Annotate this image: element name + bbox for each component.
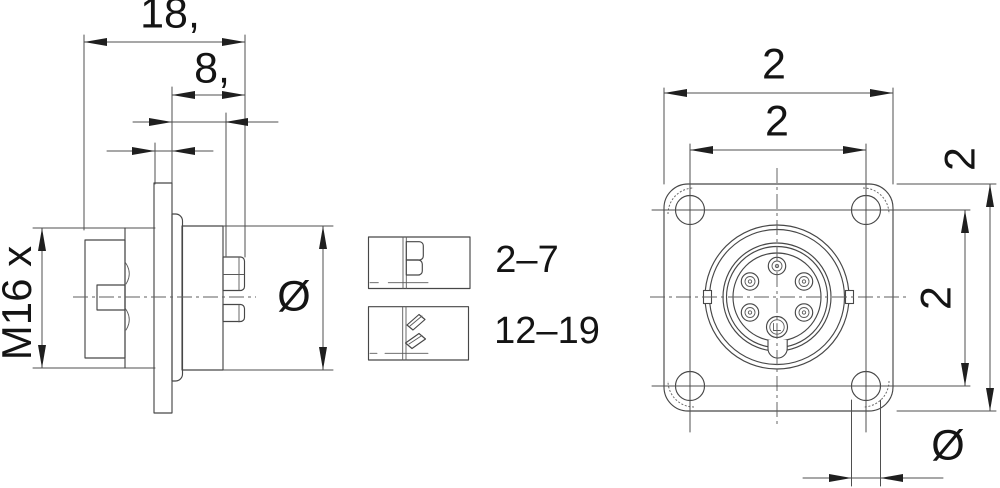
rear-body (182, 226, 223, 370)
lower-solder-tab (223, 305, 245, 322)
dim-label-rear-length: 8, (194, 48, 230, 91)
detail-straight-contacts (369, 237, 471, 289)
detail-angled-contacts (369, 307, 469, 360)
gasket (172, 214, 183, 381)
connector-technical-drawing: 18, 8, M16 x Ø 2 2 2 2 Ø 2–7 12–19 (0, 0, 1000, 488)
hex-nut (85, 240, 125, 358)
dim-label-hole-spacing-horizontal: 2 (765, 101, 789, 144)
dim-rear-body-depth (133, 113, 278, 256)
side-view (33, 35, 333, 413)
dim-flange-thickness (107, 143, 213, 184)
straight-contact-upper (406, 242, 423, 260)
flange-edge (154, 183, 172, 413)
keyway-notch (768, 340, 787, 358)
dim-thread-m16 (33, 228, 155, 368)
dim-label-hole-spacing-vertical: 2 (916, 286, 959, 310)
straight-contact-lower (406, 260, 422, 275)
detail-label-angled-contacts: 12–19 (494, 312, 600, 350)
dim-label-mounting-hole-diameter: Ø (931, 425, 964, 468)
dim-label-flange-width: 2 (762, 44, 786, 87)
dim-label-body-diameter: Ø (277, 276, 310, 319)
dim-mounting-hole-diameter (803, 400, 943, 486)
dim-hole-spacing-horizontal (690, 146, 866, 154)
connector-face (704, 225, 854, 369)
side-body (73, 183, 256, 413)
upper-solder-tab (223, 257, 245, 291)
square-flange (664, 184, 893, 411)
dim-label-flange-height: 2 (940, 147, 983, 171)
detail-label-straight-contacts: 2–7 (495, 241, 558, 279)
dim-hole-spacing-vertical (961, 210, 969, 386)
dim-label-overall-length: 18, (140, 0, 200, 36)
dim-rear-length (172, 87, 245, 184)
angled-lug-lower (406, 334, 426, 349)
center-step (97, 285, 125, 310)
angled-lug-upper (407, 315, 425, 331)
dim-label-thread: M16 x (0, 246, 38, 360)
hex-facet-arcs (125, 262, 129, 330)
